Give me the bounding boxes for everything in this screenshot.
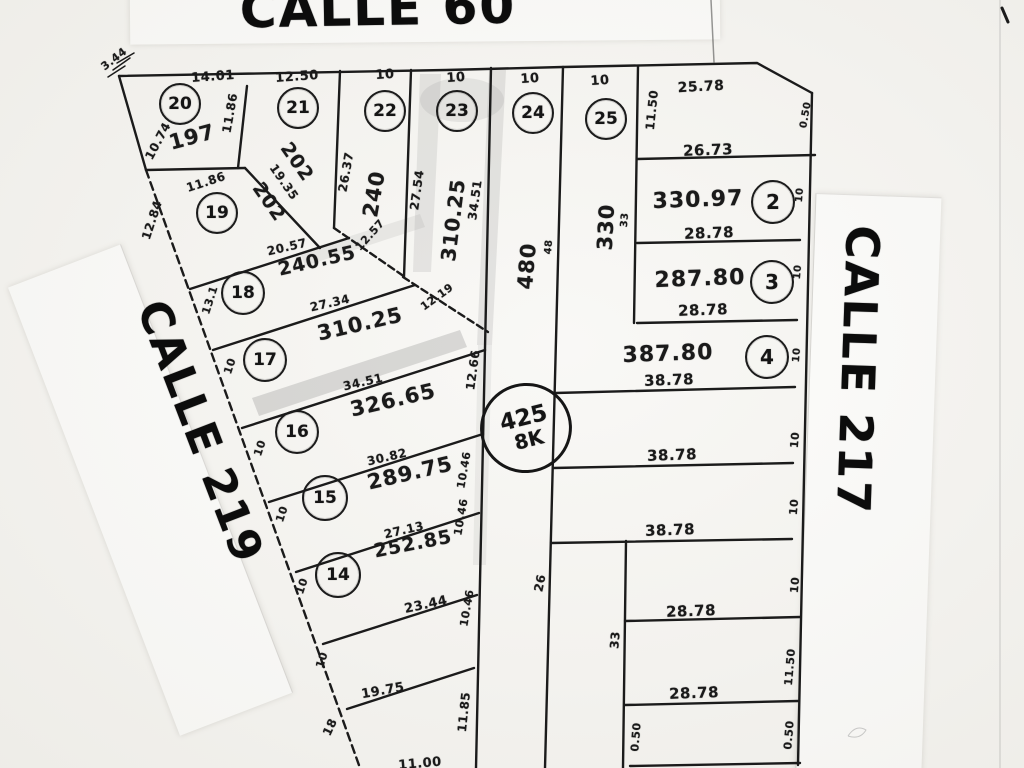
dim-label: 10 <box>788 431 802 448</box>
lot-circle-4: 4 <box>745 335 789 379</box>
dim-label: 10 <box>446 70 466 86</box>
dim-label: 28.78 <box>669 683 720 703</box>
lot-area-3: 287.80 <box>654 265 746 293</box>
dim-label: 33 <box>619 212 631 228</box>
dim-label: 26.73 <box>683 140 734 160</box>
lot-circle-21: 21 <box>277 87 319 129</box>
lot-circle-23: 23 <box>436 90 478 132</box>
dim-label: 10 <box>794 187 806 203</box>
lot-circle-25: 25 <box>585 98 627 140</box>
dim-label: 10 <box>520 71 540 87</box>
lot-area-2: 330.97 <box>652 186 744 214</box>
paper-edge-line <box>711 0 714 62</box>
lot-circle-18: 18 <box>221 271 265 315</box>
dim-label: 10 <box>792 264 804 280</box>
dim-label: 0.50 <box>781 720 796 750</box>
lot-area-4: 387.80 <box>622 340 714 368</box>
dim-label: 48 <box>543 239 555 255</box>
lot-circle-3: 3 <box>750 260 794 304</box>
dim-label: 25.78 <box>677 78 725 96</box>
dim-label: 10 <box>590 73 610 89</box>
scanned-plat-map: CALLE 60 CALLE 219 CALLE 217 425 8K 20 2… <box>0 0 1024 768</box>
dim-label: 28.78 <box>666 601 717 621</box>
dim-label: 14.01 <box>191 68 236 86</box>
street-name-top: CALLE 60 <box>239 0 516 39</box>
dim-label: 10 <box>791 347 803 363</box>
dim-label: 38.78 <box>644 370 695 390</box>
lot-area-25: 330 <box>593 203 619 251</box>
lot-circle-2: 2 <box>751 180 795 224</box>
dim-label: 0.50 <box>628 722 643 752</box>
lot-circle-22: 22 <box>364 90 406 132</box>
lot-circle-14: 14 <box>315 552 361 598</box>
lot-circle-17: 17 <box>243 338 287 382</box>
stray-ink-mark <box>1002 8 1008 22</box>
dim-label: 38.78 <box>647 445 698 465</box>
street-name-right: CALLE 217 <box>826 224 890 515</box>
dim-label: 28.78 <box>684 223 735 243</box>
lot-area-24: 480 <box>513 242 541 291</box>
block-marker-code: 8K <box>512 426 545 453</box>
lot-circle-24: 24 <box>512 92 554 134</box>
lot-circle-15: 15 <box>302 475 348 521</box>
dim-label: 10 <box>787 498 801 515</box>
dim-label: 12.50 <box>275 68 320 86</box>
dim-label: 10 <box>375 67 395 83</box>
dim-label: 28.78 <box>678 300 729 320</box>
lot-circle-20: 20 <box>159 83 201 125</box>
dim-label: 10 <box>788 576 802 593</box>
lot-circle-19: 19 <box>196 192 238 234</box>
dim-label: 38.78 <box>645 520 696 540</box>
lot-circle-16: 16 <box>275 410 319 454</box>
dim-label: 33 <box>607 631 622 650</box>
